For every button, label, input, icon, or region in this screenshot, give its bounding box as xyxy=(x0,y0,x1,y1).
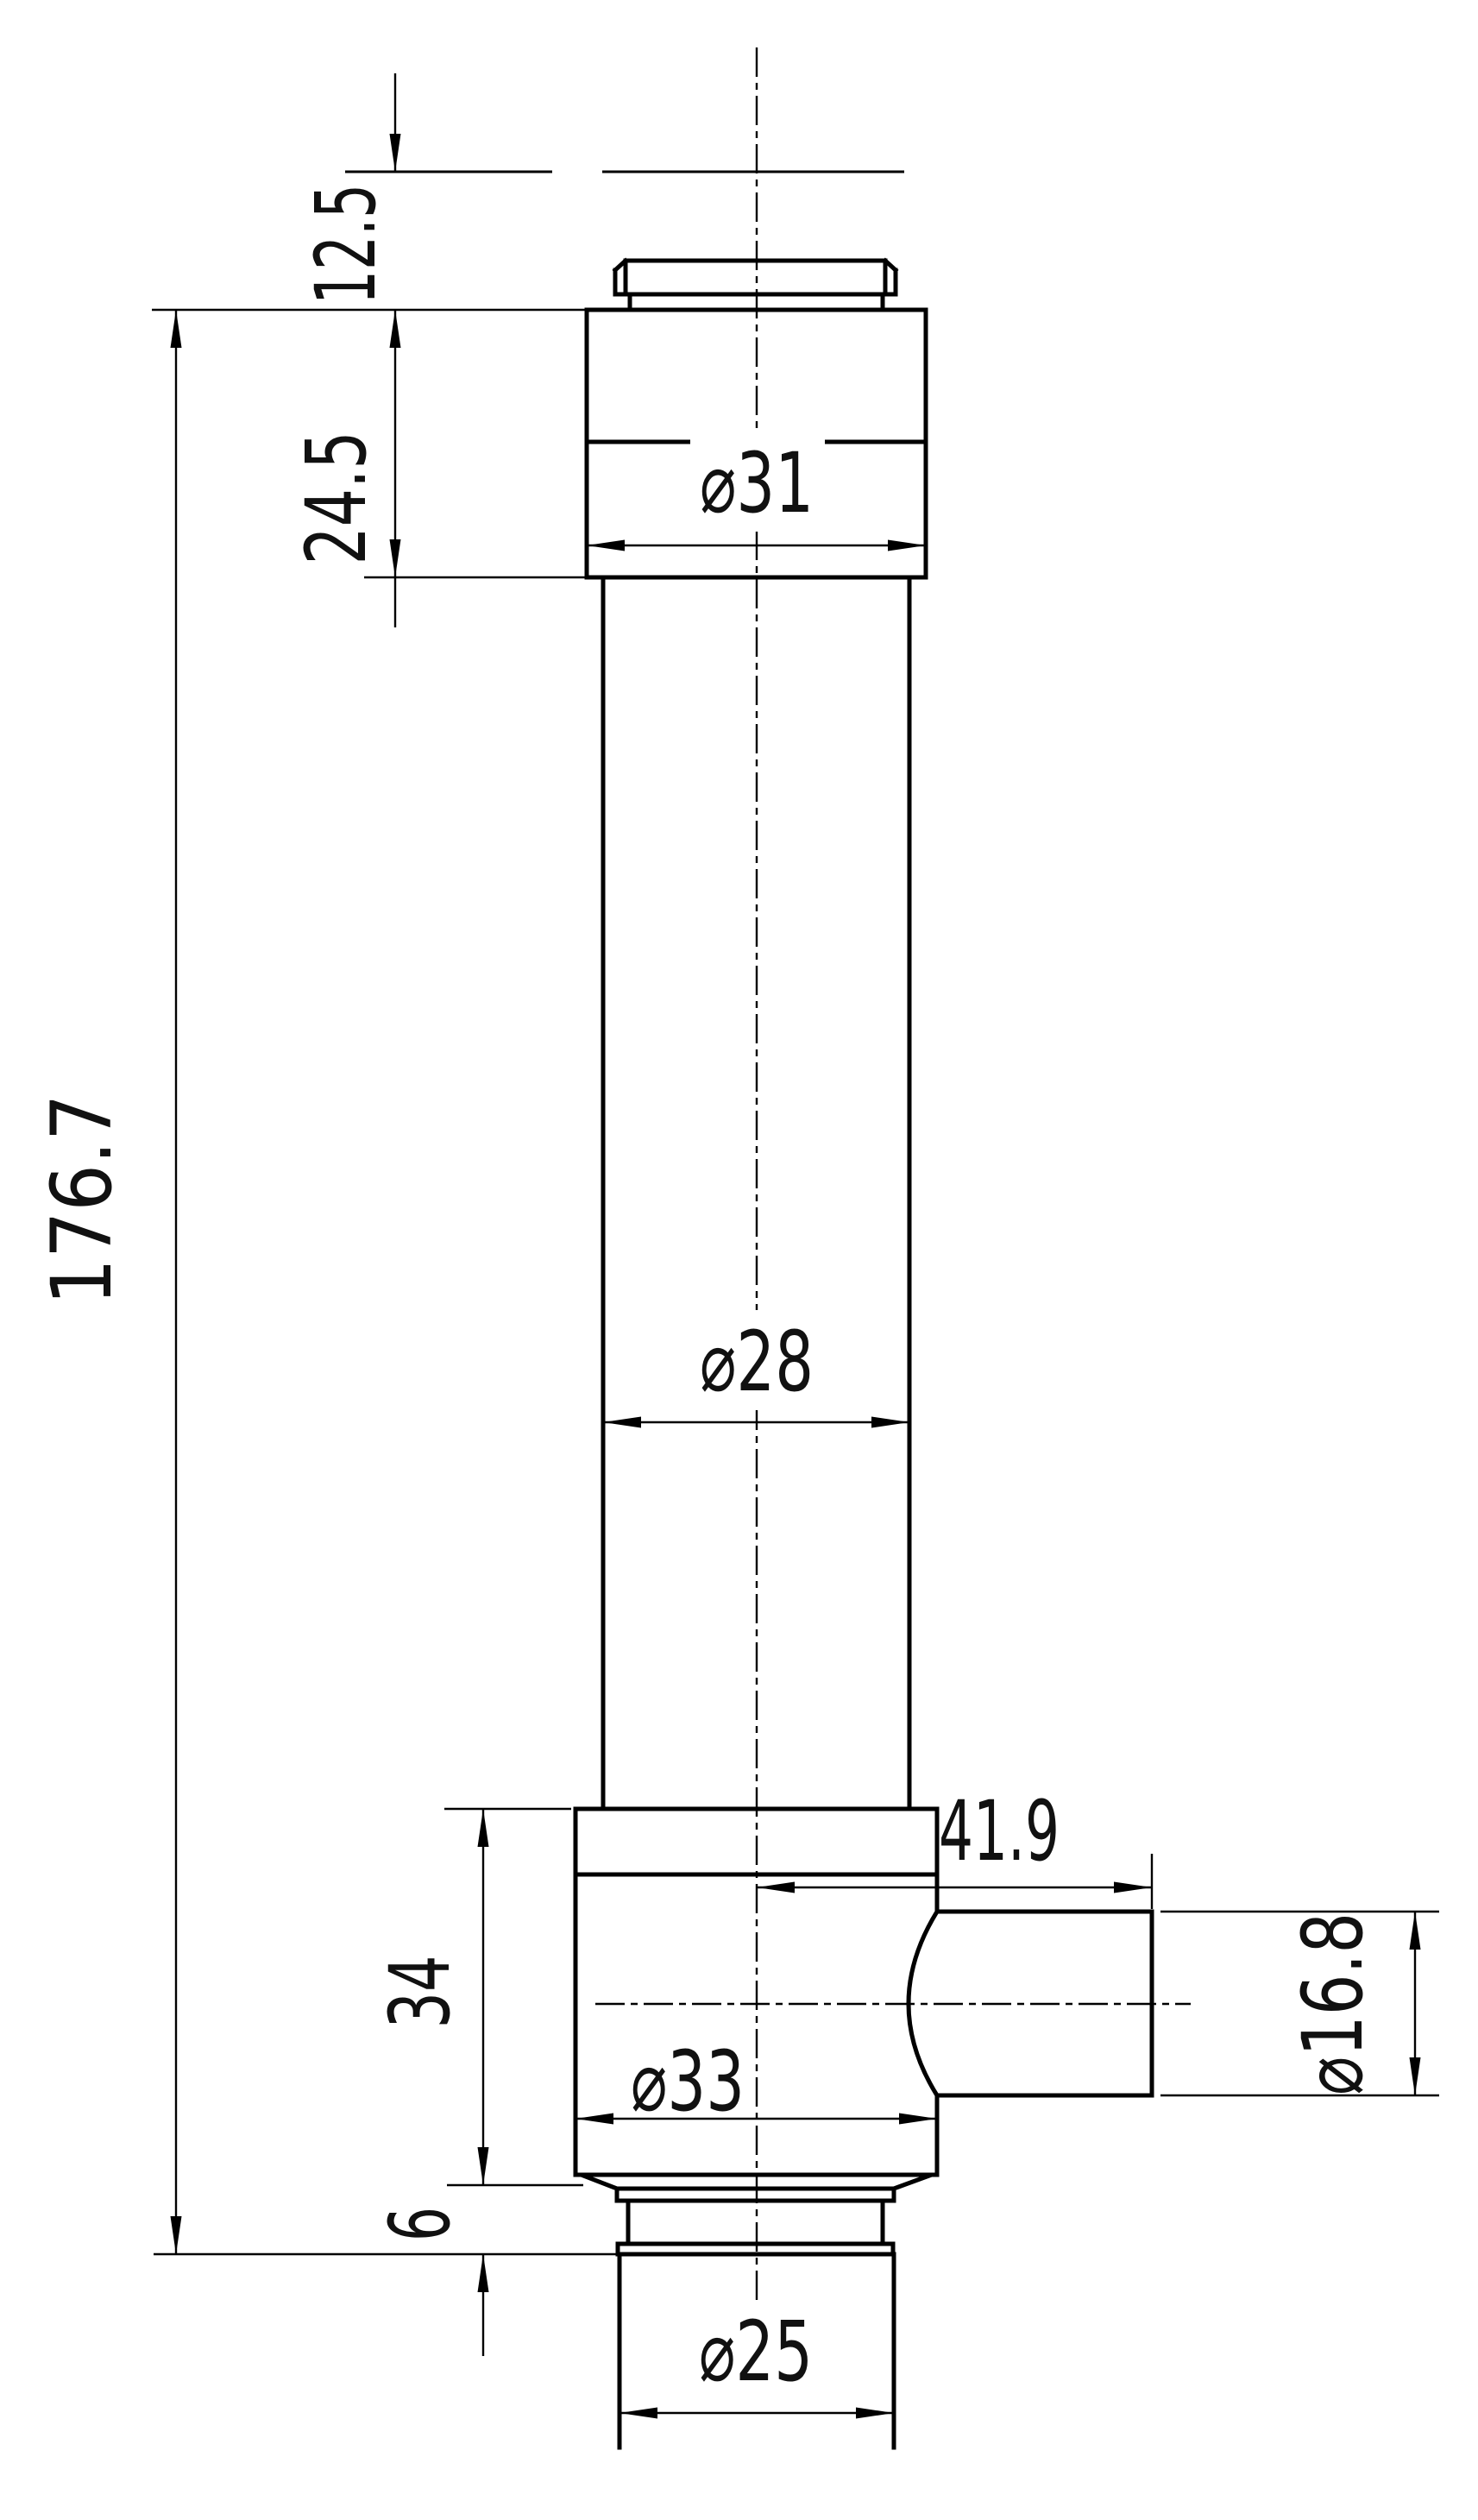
dim-stem-diameter-label: ⌀25 xyxy=(699,2303,813,2400)
dim-port-length-label: 41.9 xyxy=(939,1783,1060,1880)
dim-collar-height-label: 6 xyxy=(372,2207,469,2241)
drawing-sheet: 12.5 24.5 176.7 ⌀31 ⌀28 34 ⌀33 6 ⌀25 41.… xyxy=(0,0,1478,2520)
dim-lower-block-diameter-label: ⌀33 xyxy=(631,2033,745,2130)
top-cap xyxy=(615,261,896,294)
technical-drawing: 12.5 24.5 176.7 ⌀31 ⌀28 34 ⌀33 6 ⌀25 41.… xyxy=(0,0,1478,2520)
dim-port-diameter-label: ⌀16.8 xyxy=(1285,1912,1381,2095)
dimension-lines xyxy=(176,73,1415,2413)
dim-lower-block-height-label: 34 xyxy=(372,1956,469,2029)
dim-upper-block-diameter-label: ⌀31 xyxy=(700,435,814,532)
dim-upper-block-height-label: 24.5 xyxy=(288,432,385,565)
dim-body-diameter-label: ⌀28 xyxy=(700,1314,814,1410)
centerlines xyxy=(595,47,1191,2306)
dimension-labels: 12.5 24.5 176.7 ⌀31 ⌀28 34 ⌀33 6 ⌀25 41.… xyxy=(34,184,1381,2400)
dim-top-offset-label: 12.5 xyxy=(298,184,394,305)
dim-overall-length-label: 176.7 xyxy=(34,1094,130,1306)
